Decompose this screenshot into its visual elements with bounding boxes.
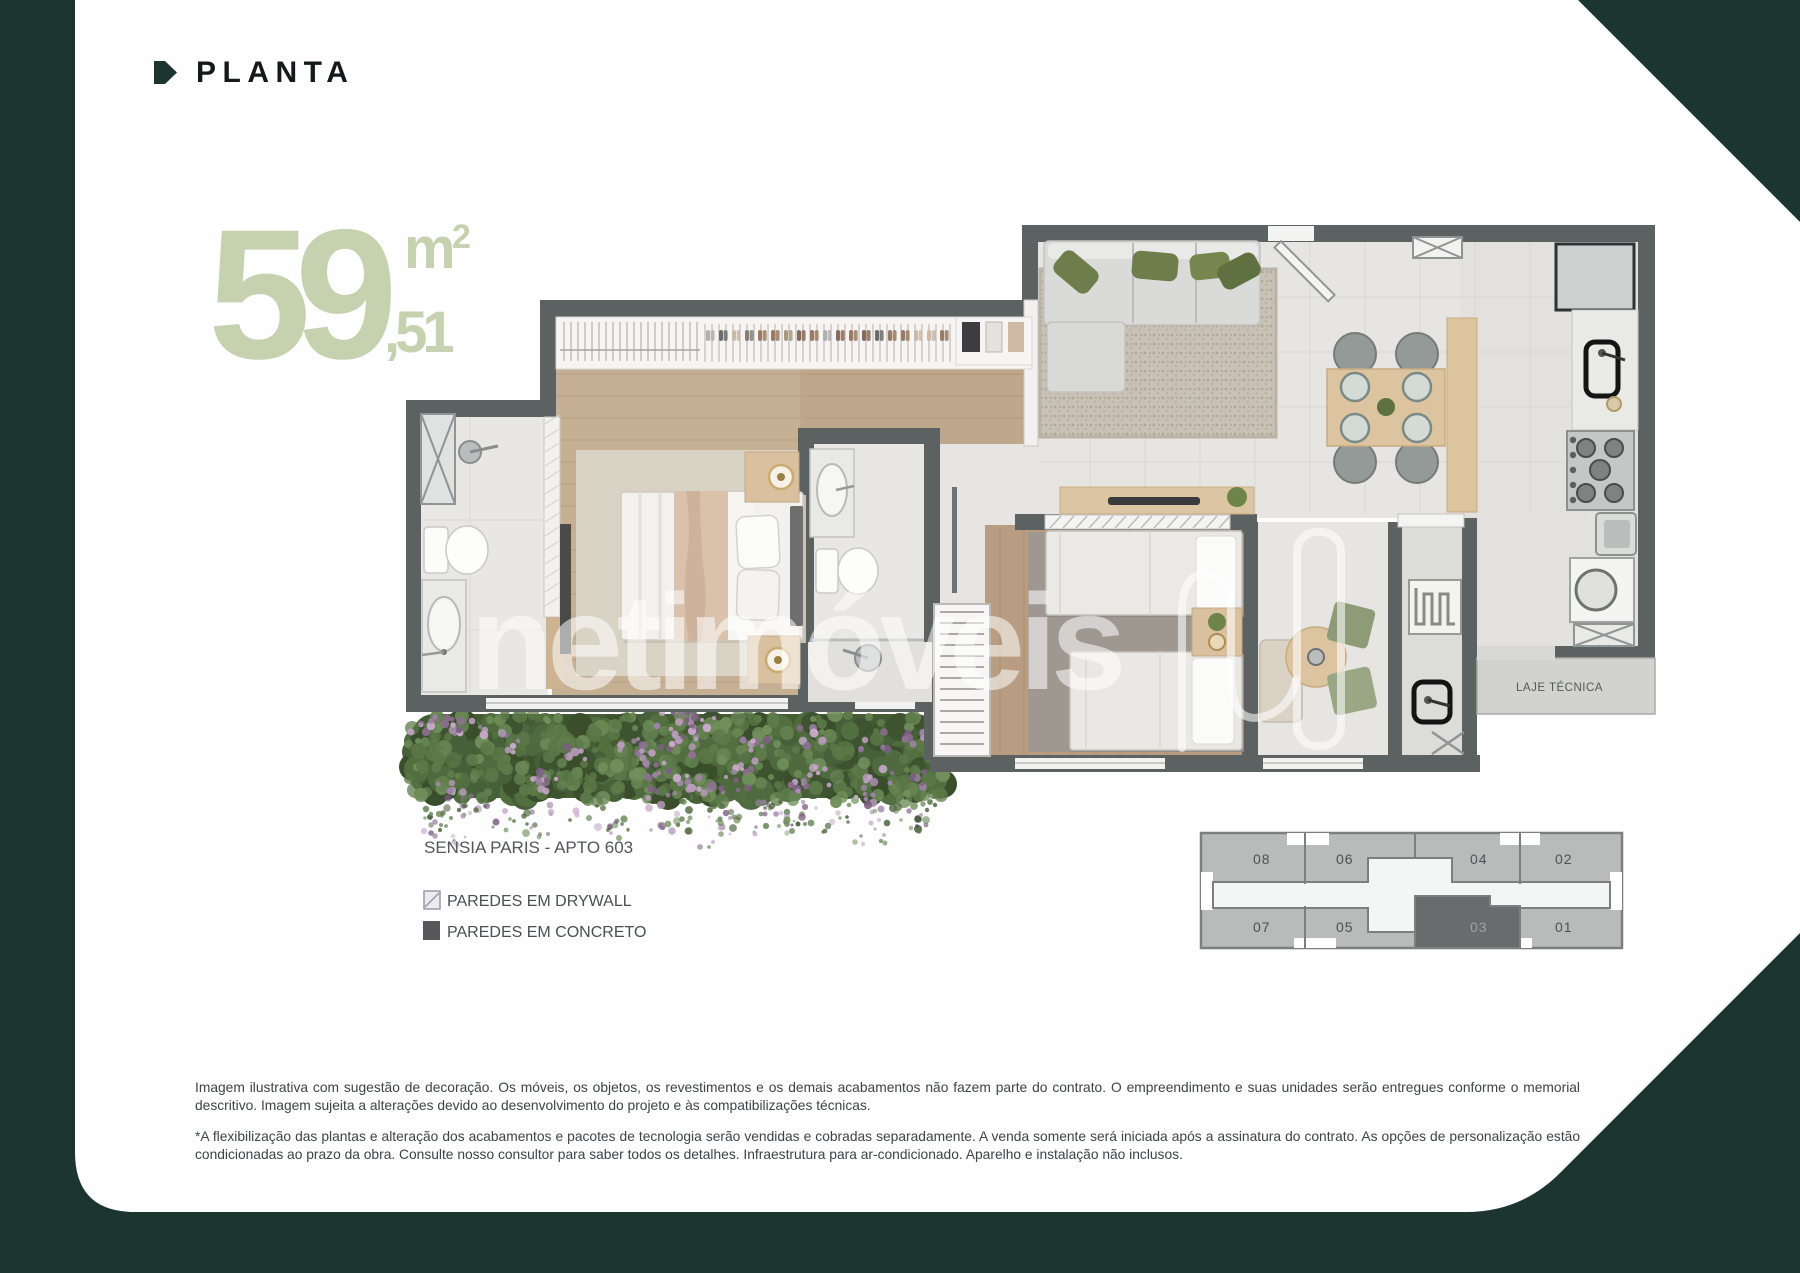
svg-text:08: 08 [1253, 851, 1271, 867]
svg-text:03: 03 [1470, 919, 1488, 935]
svg-text:05: 05 [1336, 919, 1354, 935]
svg-text:06: 06 [1336, 851, 1354, 867]
svg-text:07: 07 [1253, 919, 1271, 935]
svg-text:01: 01 [1555, 919, 1573, 935]
svg-text:04: 04 [1470, 851, 1488, 867]
svg-text:02: 02 [1555, 851, 1573, 867]
